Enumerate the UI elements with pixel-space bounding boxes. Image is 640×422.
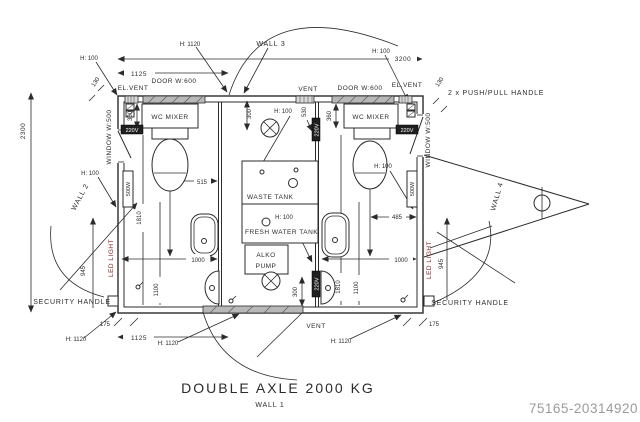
dim-130-left: 130	[91, 76, 102, 88]
el-vent-right	[399, 96, 412, 103]
label-led-light-right: LED LIGHT	[426, 241, 433, 279]
label-heater-left: 500W	[126, 181, 132, 196]
label-wc-mixer-left: WC MIXER	[151, 114, 188, 121]
label-h100-center-top: H: 100	[274, 109, 292, 115]
label-window-left: WINDOW W:500	[106, 110, 113, 165]
dim-1810-right: 1810	[336, 280, 342, 294]
label-fresh-water-tank: FRESH WATER TANK	[245, 229, 318, 236]
label-h1120-bottom-right: H: 1120	[331, 339, 352, 345]
dim-360-right: 360	[327, 110, 333, 121]
label-vent-bottom: VENT	[306, 323, 325, 330]
dim-1100-left: 1100	[154, 283, 160, 297]
label-h100-right-room: H: 100	[374, 164, 392, 170]
dim-2300: 2300	[20, 123, 27, 139]
dim-1125-bottom: 1125	[131, 335, 147, 342]
dim-3200: 3200	[395, 56, 411, 63]
label-wall3: WALL 3	[256, 41, 285, 48]
door-bottom	[203, 306, 303, 313]
window-right	[410, 114, 424, 157]
vent-top	[296, 96, 314, 103]
door-left	[143, 96, 205, 103]
label-door-left: DOOR W:600	[152, 78, 197, 85]
dim-300-bottom: 300	[293, 286, 299, 297]
drawing-title: DOUBLE AXLE 2000 KG	[181, 380, 375, 396]
dim-945-left: 945	[81, 265, 87, 276]
dim-300-top: 300	[247, 108, 253, 119]
label-door-right: DOOR W:600	[338, 85, 383, 92]
label-pump: PUMP	[256, 263, 277, 270]
dim-945-right: 945	[439, 258, 445, 269]
label-heater-right: 500W	[410, 181, 416, 196]
label-power-left: 220V	[126, 128, 139, 134]
label-el-vent-left: EL.VENT	[118, 85, 149, 92]
dim-1125-top: 1125	[131, 71, 147, 78]
fresh-water-tank	[242, 204, 318, 243]
label-wc-mixer-right: WC MIXER	[352, 114, 389, 121]
label-el-vent-right: EL.VENT	[392, 82, 423, 89]
el-vent-left	[125, 96, 138, 103]
service-room	[229, 118, 320, 303]
label-security-handle-left: SECURITY HANDLE	[33, 299, 111, 306]
floor-plan-svg: EL.VENT DOOR W:600 H: 1120 WALL 3 VENT D…	[0, 0, 640, 422]
right-wc-room	[321, 104, 418, 304]
dim-130-right: 130	[435, 76, 446, 88]
dim-1000-left: 1000	[191, 258, 205, 264]
dim-1810-left: 1810	[137, 211, 143, 225]
label-led-light-left: LED LIGHT	[108, 239, 115, 277]
dim-1100-right: 1100	[354, 281, 360, 295]
label-vent-top: VENT	[298, 86, 317, 93]
dim-515: 515	[197, 180, 208, 186]
label-wall4: WALL 4	[490, 182, 505, 212]
cistern-left	[152, 128, 188, 139]
lamp-symbol-top	[261, 119, 279, 137]
lamp-symbol-bottom	[262, 272, 280, 290]
label-power-right: 220V	[401, 128, 414, 134]
door-right	[332, 96, 394, 103]
label-wall2: WALL 2	[71, 183, 91, 212]
dim-175-right: 175	[429, 322, 440, 328]
dim-530: 530	[302, 106, 308, 117]
label-wall1: WALL 1	[255, 402, 284, 409]
fixtures	[121, 104, 418, 304]
toilet-left	[152, 139, 188, 191]
dim-360-left: 360	[128, 110, 134, 121]
dim-175-left: 175	[100, 322, 111, 328]
label-waste-tank: WASTE TANK	[247, 194, 294, 201]
label-h100-mid-left: H: 100	[81, 171, 99, 177]
label-h1120-bottom-mid: H: 1120	[158, 341, 179, 347]
watermark: 75165-20314920	[529, 401, 638, 416]
label-h1120-top: H: 1120	[180, 42, 201, 48]
floor-plan-page: EL.VENT DOOR W:600 H: 1120 WALL 3 VENT D…	[0, 0, 640, 422]
dim-485: 485	[392, 215, 403, 221]
label-h1120-bottom-left: H: 1120	[66, 337, 87, 343]
label-power-center-bottom: 220V	[315, 277, 321, 290]
dim-1000-right: 1000	[394, 258, 408, 264]
label-push-pull-handle: 2 x PUSH/PULL HANDLE	[448, 90, 544, 97]
label-h100-top-left: H: 100	[80, 56, 98, 62]
cistern-right	[354, 128, 390, 139]
label-power-center-top: 220V	[315, 123, 321, 136]
label-window-right: WINDOW W:500	[425, 113, 432, 168]
label-h100-center-mid: H: 100	[275, 215, 293, 221]
label-security-handle-right: SECURITY HANDLE	[431, 300, 509, 307]
label-alko: ALKO	[256, 252, 275, 259]
label-h100-top-right: H: 100	[372, 49, 390, 55]
